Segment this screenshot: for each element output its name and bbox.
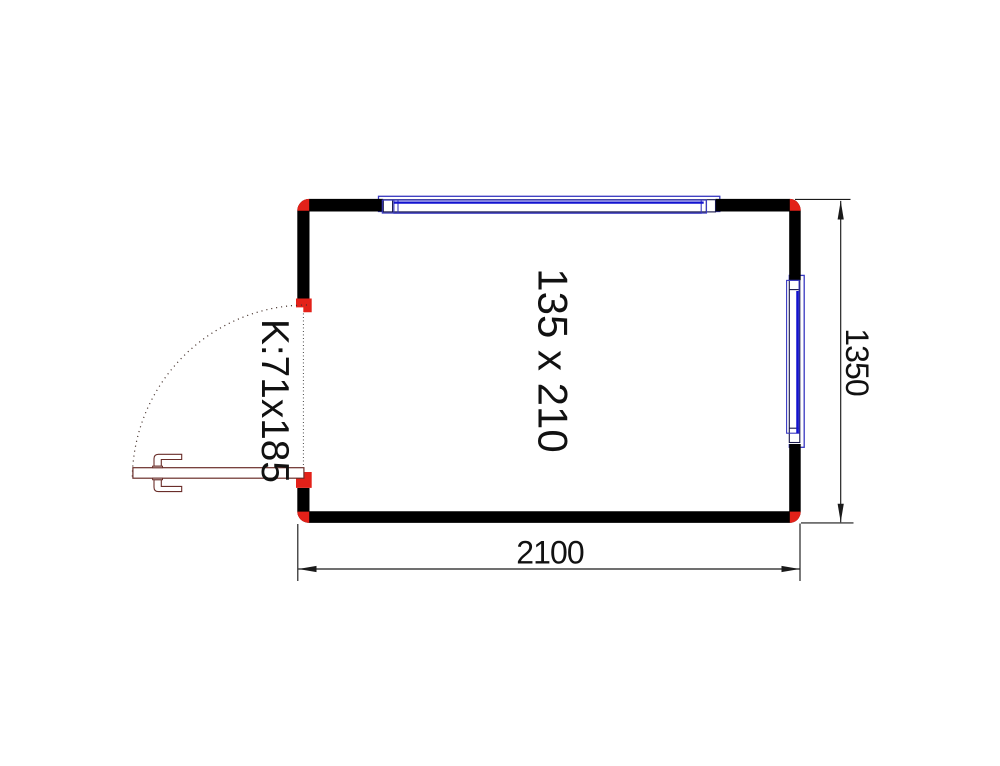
svg-text:2100: 2100: [516, 535, 584, 571]
svg-text:1350: 1350: [839, 328, 875, 396]
svg-text:135 x 210: 135 x 210: [529, 268, 576, 453]
svg-text:K:71x185: K:71x185: [253, 319, 296, 483]
